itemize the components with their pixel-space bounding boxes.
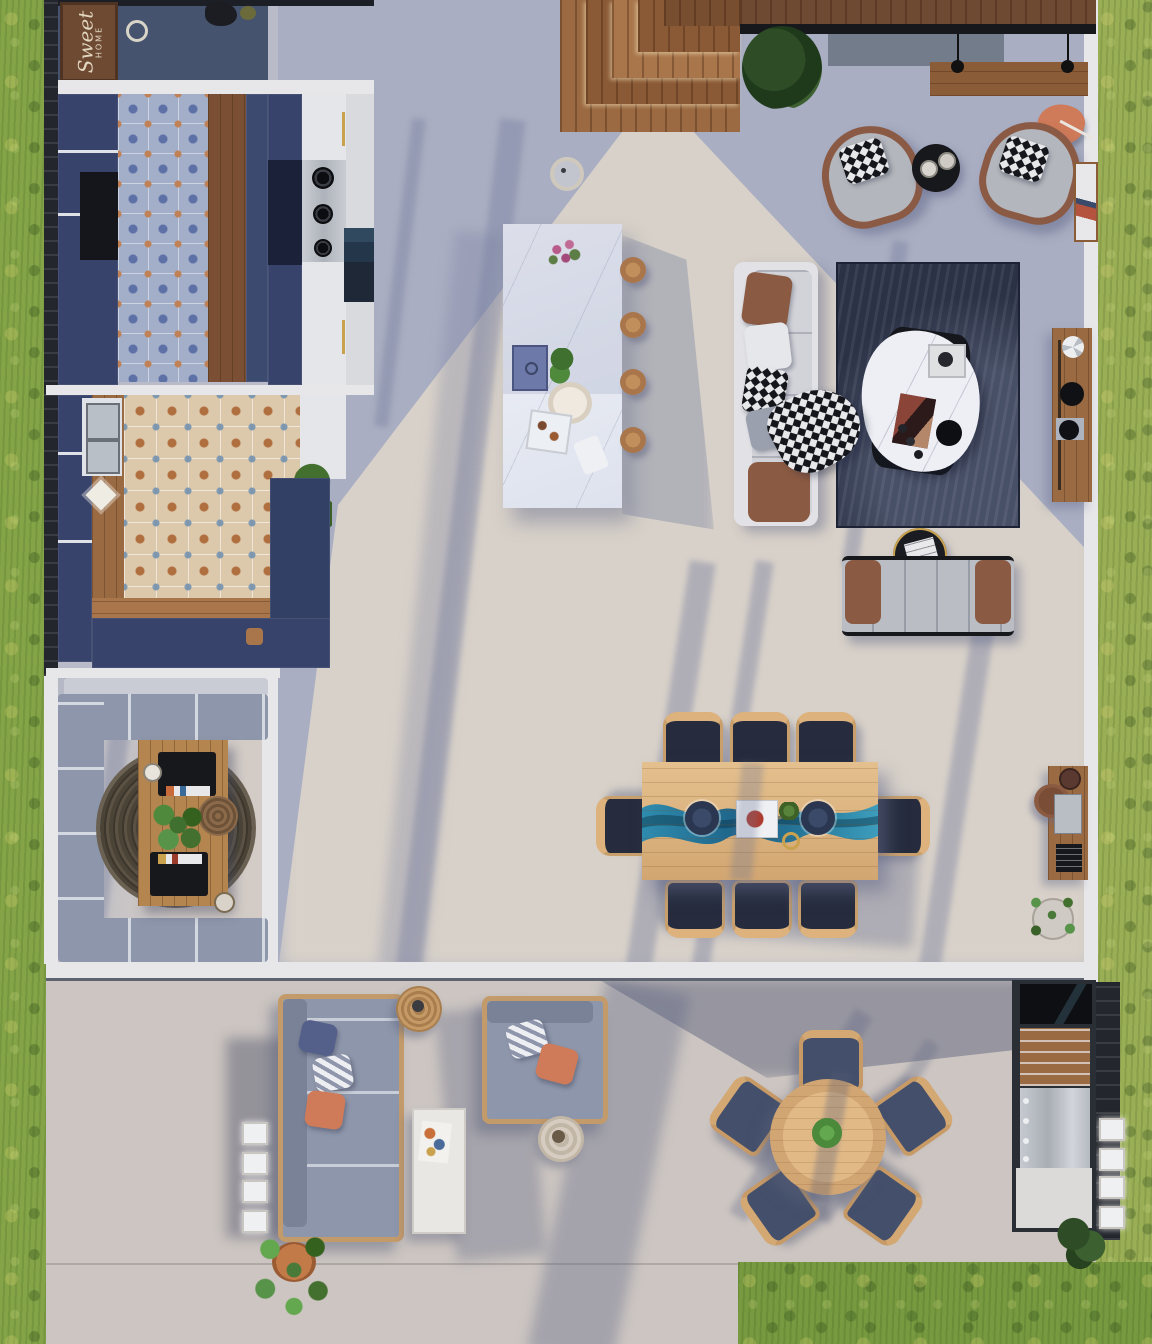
tray-cup [938,352,953,367]
ceiling-pendant [550,157,584,191]
burner [312,167,334,189]
grill-knob [1023,1138,1029,1144]
coffee-cup [143,763,162,782]
burner [313,204,333,224]
entry-kitchen-wall [58,80,374,94]
pendant-lamp [1061,60,1074,73]
deck-platform [664,0,740,26]
wall-light [1099,1176,1125,1199]
fence-left [44,0,58,676]
decor-bead [914,450,923,459]
doormat-text: Sweet HOME [75,11,103,74]
orange-pillow [304,1090,347,1131]
oven-tower [344,228,374,302]
wall-light [1099,1148,1125,1171]
wall-light [242,1180,268,1203]
wall-light [242,1122,268,1145]
patio-magazines [418,1121,452,1164]
patio-plant [246,1218,342,1322]
art-board [1074,162,1098,242]
doormat: Sweet HOME [60,2,118,82]
succulent-centerpiece [812,1118,842,1148]
nook-books [1056,844,1082,872]
counter-white [302,94,346,160]
dining-chair [872,796,930,856]
island-stool [620,427,646,453]
aerial-home-render: Sweet HOME [0,0,1152,1344]
wood-stool [246,628,263,645]
lawn-left [0,0,46,1344]
laptop-screen [158,854,202,864]
table-cup [938,152,956,170]
white-pillow [743,321,792,372]
floor-plant [1020,884,1084,946]
nook-bowl [1059,768,1081,790]
patio-wall [46,962,1096,978]
island-plant [550,348,574,384]
office-divider-wall [46,668,280,678]
grill-knob [1023,1098,1029,1104]
black-bowl [936,420,962,446]
decor-bead [898,424,907,433]
console-bowl [1060,382,1084,406]
leather-pillow [741,271,794,329]
console-slot [1058,340,1061,490]
grill-knob [1023,1156,1029,1162]
console-bowl [1059,420,1079,440]
place-setting [685,801,719,835]
sink-basin [86,403,120,440]
rattan-table-cup [412,1000,424,1012]
cabinet-handle [342,112,345,146]
office-sofa-cushions-bottom [64,918,268,962]
ceiling-pendant-center [561,168,566,173]
wall-light [1099,1118,1125,1141]
bench-leather-cushion [975,560,1011,624]
island-flowers [546,236,582,270]
corner-bush [1048,1210,1112,1270]
dining-chair [798,880,858,938]
board-handle-hole [525,362,538,375]
deck-plant [742,26,822,110]
pantry-cabinets-bottom [92,618,330,668]
decor-bead [906,437,915,446]
patio-seam [46,1263,740,1265]
desk-plant [146,792,210,858]
rear-deck [740,0,1096,24]
sink-basin [86,440,120,474]
serving-tray [525,409,572,454]
place-setting [801,801,835,835]
entry-pendant-light [126,20,148,42]
nook-laptop [1054,794,1082,834]
kitchen-wood-strip [208,94,246,382]
pendant-lamp [951,60,964,73]
cabinet-counter-line [58,150,118,153]
doormat-line1: Sweet [75,11,95,74]
kitchen-tile-floor [118,94,208,382]
grill-wood-slats [1020,1028,1090,1086]
built-in-appliance [80,172,118,260]
dining-chair [732,880,792,938]
striped-pillow [311,1053,354,1093]
lawn-bottom [738,1262,1152,1344]
cabinet-handle [342,320,345,354]
grill-glass-panel [1020,984,1092,1024]
island-stool [620,257,646,283]
side-table-cup [552,1130,565,1143]
napkin-ring [782,832,800,850]
fence-patio-right [1096,982,1120,1240]
grill-knob [1023,1118,1029,1124]
table-greens [778,802,800,820]
geo-decor-ball [1062,336,1084,358]
burner [314,239,332,257]
wall-light [242,1152,268,1175]
backpack [205,2,237,26]
island-stool [620,369,646,395]
bench-leather-cushion [845,560,881,624]
dining-chair [665,880,725,938]
counter-white [302,262,346,385]
wall-left-office [44,676,58,964]
table-cup [920,160,938,178]
coffee-cup [214,892,235,913]
grill-stainless [1020,1088,1090,1168]
kitchen-runner [246,94,268,382]
cabinet-counter-line [58,540,92,543]
window-shadow-streak [374,118,426,427]
tall-cabinet-dark [268,160,302,265]
patio-wall-line [46,978,1096,981]
bag [240,6,256,20]
lounge-backrest [487,1001,593,1023]
island-stool [620,312,646,338]
kitchen-divider-wall [46,385,374,395]
